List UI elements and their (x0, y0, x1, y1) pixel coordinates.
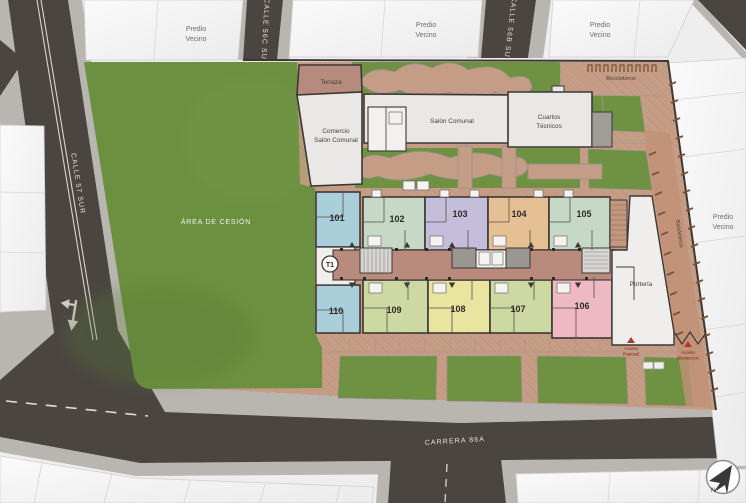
predio-top-center: Predio Vecino (289, 0, 482, 57)
cuartos-tecnicos-label: Cuartos (538, 114, 560, 121)
north-label: N (711, 487, 716, 494)
unit-101-label: 101 (329, 213, 344, 223)
bicicleteros-top-label: Bicicleteros (606, 76, 636, 82)
unit-108-label: 108 (450, 304, 465, 314)
unit-104-label: 104 (511, 209, 526, 219)
acceso-peatonal-label: Acceso (624, 346, 638, 351)
predio-label: Predio (186, 26, 206, 33)
predio-label: Vecino (589, 32, 610, 39)
unit-103-label: 103 (452, 209, 467, 219)
bench (643, 362, 653, 369)
acceso-peatonal-label: Peatonal (623, 352, 640, 357)
terraza-label: Terraza (320, 79, 342, 86)
site-plan-canvas: Predio Vecino Predio Vecino Predio Vecin… (0, 0, 746, 503)
predio-label: Predio (713, 214, 733, 221)
unit-105-label: 105 (576, 209, 591, 219)
predio-label: Predio (416, 22, 436, 29)
unit-110-label: 110 (329, 306, 344, 316)
porteria-label: Portería (630, 281, 653, 288)
predio-label: Vecino (712, 224, 733, 231)
area-cesion-label: ÁREA DE CESIÓN (181, 217, 251, 226)
comercio-label: Comercio (322, 128, 350, 135)
elevator-shaft (368, 107, 406, 151)
compass: N (707, 461, 740, 495)
acceso-bicicleteros-label: Acceso (681, 350, 695, 355)
unit-102-label: 102 (389, 214, 404, 224)
service-core (506, 248, 530, 268)
predio-left-side (0, 125, 46, 312)
salon-comunal-label: Salón Comunal (430, 118, 474, 125)
predio-label: Vecino (185, 36, 206, 43)
bench (654, 362, 664, 369)
site-plan: Predio Vecino Predio Vecino Predio Vecin… (0, 0, 746, 503)
service-core (452, 248, 476, 268)
service-block (592, 112, 612, 147)
t1-label: T1 (326, 262, 334, 269)
acceso-bicicleteros-label: Bicicleteros (677, 356, 698, 361)
predio-top-right: Predio Vecino (549, 0, 694, 57)
comercio-label: Salón Comunal (314, 137, 358, 144)
cuartos-tecnicos-label: Técnicos (536, 123, 562, 130)
unit-106-label: 106 (574, 301, 589, 311)
unit-109-label: 109 (386, 305, 401, 315)
predio-label: Vecino (415, 32, 436, 39)
predio-label: Predio (590, 22, 610, 29)
unit-107-label: 107 (510, 304, 525, 314)
t1-badge: T1 (322, 256, 338, 272)
predio-top-left: Predio Vecino (84, 0, 243, 60)
